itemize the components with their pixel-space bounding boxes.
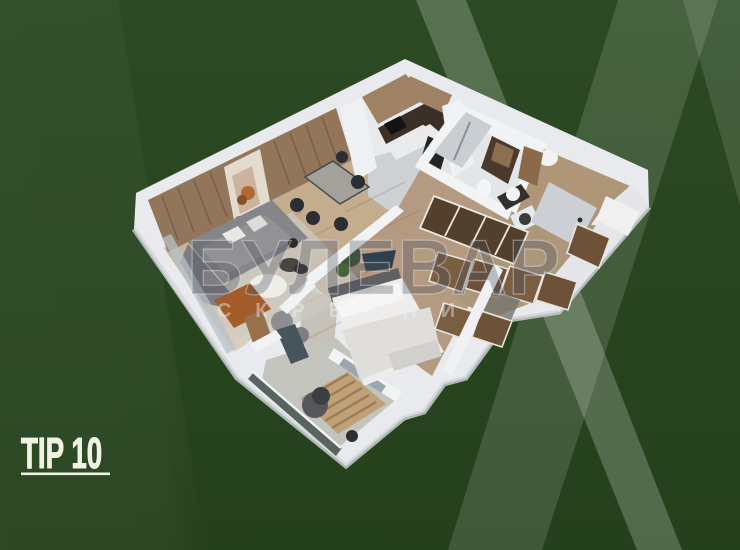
svg-text:TIP 10: TIP 10 [21, 429, 102, 478]
svg-text:БУЛЕВАР: БУЛЕВАР [187, 223, 561, 311]
svg-text:СКРЕТНИ: СКРЕТНИ [217, 300, 479, 322]
